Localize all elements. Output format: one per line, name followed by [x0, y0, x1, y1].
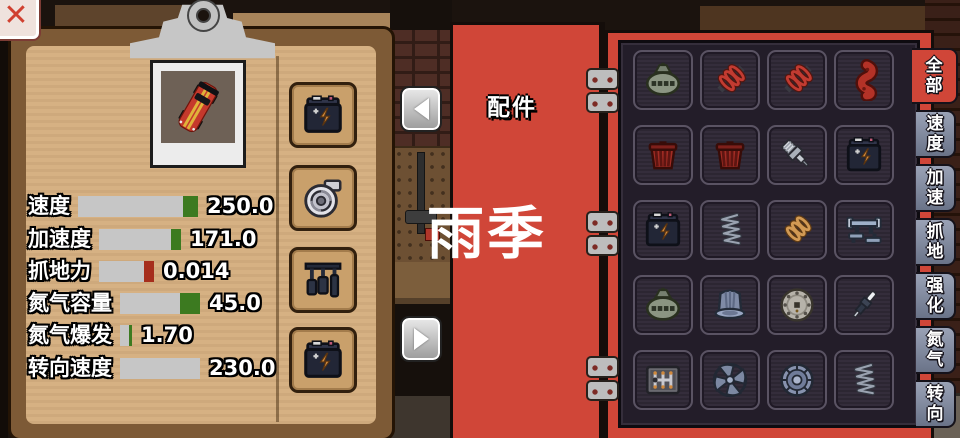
pedals-icon: [300, 257, 346, 303]
vehicle-photo: [161, 71, 235, 143]
prev-page-button[interactable]: [402, 88, 440, 130]
hinge-plate: [586, 68, 619, 90]
tab-acceleration[interactable]: 加速: [916, 164, 956, 212]
stat-row-nitro-capacity: 氮气容量 45.0: [28, 290, 261, 316]
door-hinge: [586, 211, 619, 256]
part-icon: [843, 359, 885, 401]
stat-bar-cap: [144, 261, 154, 282]
stat-bar: [78, 196, 198, 217]
left-triangle-icon: [414, 98, 429, 120]
part-icon: [843, 284, 885, 326]
hinge-plate: [586, 235, 619, 257]
part-icon: [642, 284, 684, 326]
tab-label: 强化: [925, 276, 945, 316]
stat-row-nitro-burst: 氮气爆发 1.70: [28, 322, 193, 348]
hinge-plate: [586, 211, 619, 233]
tab-label: 氮气: [925, 330, 945, 370]
tab-label: 转向: [925, 384, 945, 424]
stat-label: 氮气容量: [28, 291, 112, 315]
parts-book-title: 配件: [487, 88, 537, 122]
part-slot[interactable]: [700, 350, 760, 410]
part-icon: [776, 134, 818, 176]
screen-left-shadow: [0, 0, 8, 438]
stat-bar: [120, 325, 132, 346]
door-hinge: [586, 356, 619, 401]
stat-row-steering-speed: 转向速度 230.0: [28, 355, 275, 381]
part-icon: [709, 209, 751, 251]
stat-bar: [99, 261, 154, 282]
stat-value: 250.0: [207, 194, 273, 218]
part-slot[interactable]: [834, 275, 894, 335]
part-icon: [709, 284, 751, 326]
clipboard-divider: [276, 56, 279, 422]
hinge-plate: [586, 380, 619, 402]
part-slot[interactable]: [767, 275, 827, 335]
part-slot[interactable]: [700, 275, 760, 335]
part-slot[interactable]: [834, 350, 894, 410]
part-slot[interactable]: [767, 50, 827, 110]
stat-value: 45.0: [209, 291, 261, 315]
part-icon: [776, 209, 818, 251]
tab-label: 加速: [925, 168, 945, 208]
part-icon: [709, 359, 751, 401]
part-slot[interactable]: [633, 275, 693, 335]
part-slot[interactable]: [633, 200, 693, 260]
part-icon: [642, 59, 684, 101]
stat-value: 0.014: [163, 259, 229, 283]
turbocharger-icon: [300, 175, 346, 221]
equipped-slot-battery-2[interactable]: [289, 327, 357, 393]
stat-bar: [120, 293, 200, 314]
right-triangle-icon: [414, 328, 429, 350]
part-icon: [642, 134, 684, 176]
stat-bar-cap: [171, 229, 181, 250]
part-slot[interactable]: [767, 125, 827, 185]
clipboard-clip-ring: [189, 1, 218, 30]
stat-bar-cap: [129, 325, 132, 346]
part-slot[interactable]: [834, 200, 894, 260]
stat-label: 氮气爆发: [28, 323, 112, 347]
tab-strengthen[interactable]: 强化: [916, 272, 956, 320]
part-slot[interactable]: [834, 125, 894, 185]
part-icon: [642, 359, 684, 401]
tab-label: 速度: [925, 114, 945, 154]
close-icon: ✕: [3, 1, 28, 31]
part-slot[interactable]: [700, 200, 760, 260]
next-page-button[interactable]: [402, 318, 440, 360]
tab-label: 全部: [924, 56, 944, 96]
part-icon: [776, 59, 818, 101]
close-button[interactable]: ✕: [0, 0, 39, 39]
part-icon: [843, 134, 885, 176]
parts-grid: [633, 50, 894, 410]
race-car-icon: [172, 76, 225, 138]
battery-icon: [300, 337, 346, 383]
stat-bar: [99, 229, 181, 250]
hinge-plate: [586, 92, 619, 114]
part-icon: [709, 134, 751, 176]
stat-bar: [120, 358, 200, 379]
part-icon: [642, 209, 684, 251]
part-slot[interactable]: [700, 125, 760, 185]
stat-row-grip: 抓地力 0.014: [28, 258, 229, 284]
stat-bar-cap: [180, 293, 200, 314]
category-tab-bar: 全部 速度 加速 抓地 强化 氮气 转向: [912, 48, 958, 434]
stat-label: 加速度: [28, 227, 91, 251]
floor: [390, 396, 452, 438]
tab-grip[interactable]: 抓地: [916, 218, 956, 266]
part-slot[interactable]: [633, 125, 693, 185]
stat-value: 1.70: [141, 323, 193, 347]
stat-value: 230.0: [209, 356, 275, 380]
tab-steering[interactable]: 转向: [916, 380, 956, 428]
tab-speed[interactable]: 速度: [916, 110, 956, 158]
garage-tuning-screen: 速度 250.0 加速度 171.0 抓地力 0.014 氮气容量 45.0 氮…: [0, 0, 960, 438]
part-icon: [776, 359, 818, 401]
stat-label: 抓地力: [28, 259, 91, 283]
stat-row-acceleration: 加速度 171.0: [28, 226, 256, 252]
stat-value: 171.0: [190, 227, 256, 251]
part-slot[interactable]: [633, 350, 693, 410]
part-icon: [843, 209, 885, 251]
part-slot[interactable]: [767, 200, 827, 260]
equipped-slot-turbocharger[interactable]: [289, 165, 357, 231]
tab-label: 抓地: [925, 222, 945, 262]
door-hinge: [586, 68, 619, 113]
vehicle-photo-frame: [150, 60, 246, 168]
stat-label: 转向速度: [28, 356, 112, 380]
stat-row-speed: 速度 250.0: [28, 193, 273, 219]
equipped-slot-pedals[interactable]: [289, 247, 357, 313]
tab-all[interactable]: 全部: [912, 48, 958, 104]
part-icon: [776, 284, 818, 326]
stat-label: 速度: [28, 194, 70, 218]
battery-icon: [300, 92, 346, 138]
part-slot[interactable]: [834, 50, 894, 110]
part-slot[interactable]: [700, 50, 760, 110]
stat-bar-cap: [183, 196, 198, 217]
part-slot[interactable]: [633, 50, 693, 110]
equipped-slot-battery[interactable]: [289, 82, 357, 148]
part-slot[interactable]: [767, 350, 827, 410]
part-icon: [709, 59, 751, 101]
part-icon: [843, 59, 885, 101]
tab-nitro[interactable]: 氮气: [916, 326, 956, 374]
hinge-plate: [586, 356, 619, 378]
season-overlay-label: 雨季: [427, 188, 547, 270]
